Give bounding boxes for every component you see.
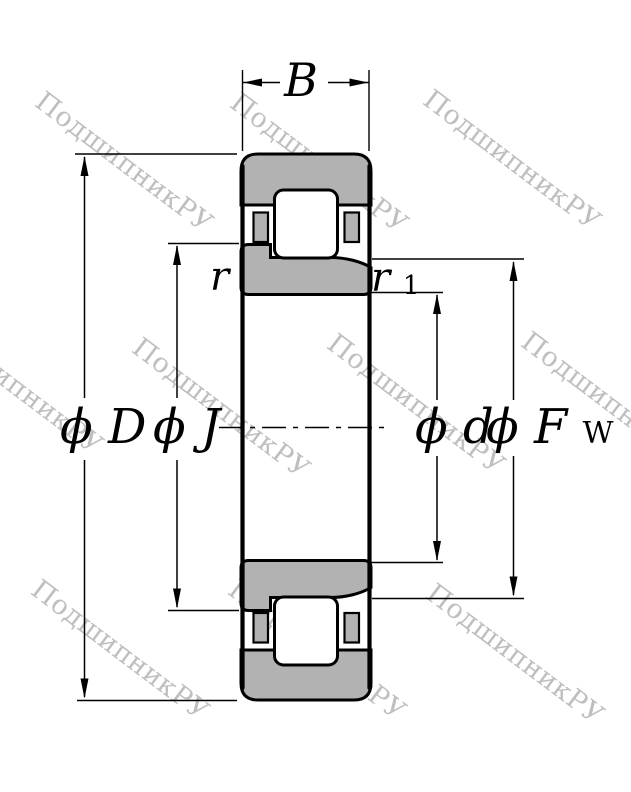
roller-bottom: [275, 597, 338, 665]
cage-bottom-left: [254, 613, 269, 643]
letter-r: r: [371, 255, 393, 301]
cage-top-left: [254, 213, 269, 243]
roller-top: [275, 190, 338, 258]
arrowhead-J-bottom: [173, 589, 181, 609]
arrowhead-Fw-bottom: [510, 577, 518, 597]
arrowhead-B-left: [243, 79, 262, 87]
arrowhead-d-bottom: [433, 541, 441, 561]
label-phi-d: ϕ d: [415, 399, 494, 455]
label-phi-J: ϕ J: [153, 399, 223, 455]
label-phi-D: ϕ D: [60, 399, 146, 455]
label-r: r: [210, 254, 232, 300]
letter-D: D: [107, 399, 146, 455]
cage-top-right: [345, 213, 360, 243]
label-r1: r 1: [371, 255, 419, 301]
cage-bottom-right: [345, 613, 360, 643]
letter-F: F: [533, 399, 569, 455]
phi-symbol: ϕ: [415, 399, 448, 455]
phi-symbol: ϕ: [60, 399, 93, 455]
arrowhead-d-top: [433, 294, 441, 314]
label-B: B: [283, 53, 318, 107]
phi-symbol: ϕ: [486, 399, 519, 455]
subscript-W: W: [583, 416, 614, 451]
phi-symbol: ϕ: [153, 399, 186, 455]
arrowhead-B-right: [350, 79, 369, 87]
arrowhead-J-top: [173, 245, 181, 265]
arrowhead-Fw-top: [510, 261, 518, 281]
subscript-1: 1: [403, 271, 420, 301]
arrowhead-D-top: [81, 156, 89, 176]
letter-J: J: [192, 399, 223, 455]
arrowhead-D-bottom: [81, 679, 89, 699]
bearing-cross-section-drawing: B ϕ D ϕ J ϕ d ϕ F W r r 1: [0, 0, 631, 792]
label-phi-Fw: ϕ F W: [486, 399, 614, 455]
bearing-drawing-page: ПодшипникРУПодшипникРУПодшипникРУПодшипн…: [0, 0, 631, 792]
